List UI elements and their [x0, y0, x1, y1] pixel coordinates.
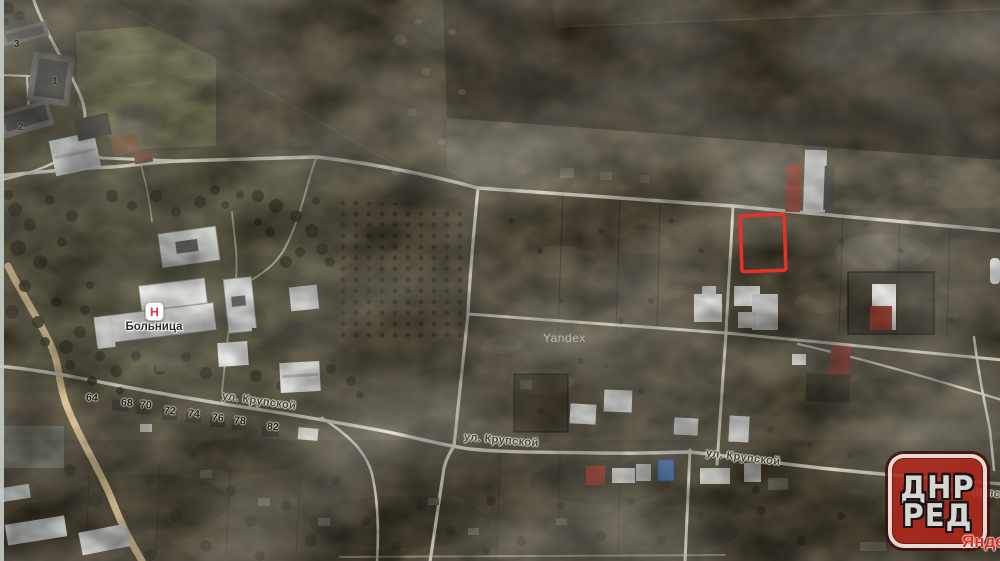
- satellite-map[interactable]: 312 6468707274767882 ул. Крупскойул. Кру…: [0, 0, 1000, 561]
- terrain-graphics: [0, 0, 1000, 561]
- hospital-marker[interactable]: Н Больница: [145, 302, 162, 319]
- logo-text-line2: РЕД: [903, 500, 973, 531]
- hospital-name-label: Больница: [109, 321, 199, 333]
- yandex-brand-logo: Яндекс: [962, 532, 1000, 552]
- yandex-map-watermark: Yandex: [543, 331, 586, 345]
- map-edge-strip: [0, 0, 4, 561]
- hospital-icon: Н: [145, 302, 164, 321]
- noise-light: [0, 0, 1000, 561]
